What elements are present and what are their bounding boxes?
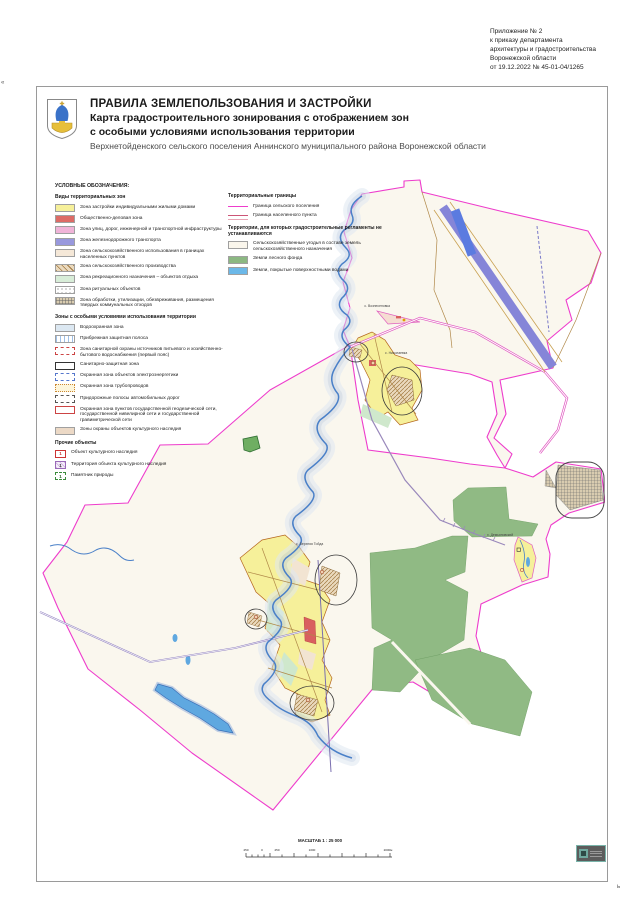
line-settlement-boundary	[228, 206, 248, 207]
legend-label: Сельскохозяйственные угодья в составе зе…	[253, 241, 386, 253]
legend-item: Зона сельскохозяйственного использования…	[55, 249, 227, 261]
stamp-text-lines	[590, 851, 602, 857]
legend-label: Зоны охраны объектов культурного наследи…	[80, 427, 181, 433]
legend-item: Зона обработки, утилизации, обезвреживан…	[55, 297, 227, 309]
legend-label: Зона ритуальных объектов	[80, 286, 140, 292]
swatch-residential-zone	[55, 204, 75, 212]
legend-label: Зона рекреационного назначения – объекто…	[80, 275, 198, 281]
legend-item: Зона рекреационного назначения – объекто…	[55, 275, 227, 283]
legend-label: Охранная зона пунктов государственной ге…	[80, 406, 227, 423]
swatch-agri-in-settlement-zone	[55, 249, 75, 257]
scale-tick: 250	[274, 848, 279, 852]
legend: УСЛОВНЫЕ ОБОЗНАЧЕНИЯ: Виды территориальн…	[55, 183, 227, 483]
legend-item: Сельскохозяйственные угодья в составе зе…	[228, 241, 386, 253]
swatch-geodetic-zone	[55, 406, 75, 414]
scale-tick: 1000	[309, 848, 316, 852]
annotation-line: от 19.12.2022 № 45-01-04/1265	[490, 64, 630, 73]
legend-label: Охранная зона трубопроводов	[80, 384, 148, 390]
legend-label: Земли, покрытые поверхностными водами	[253, 267, 348, 273]
title-text: ПРАВИЛА ЗЕМЛЕПОЛЬЗОВАНИЯ И ЗАСТРОЙКИ Кар…	[90, 98, 486, 151]
legend-label: Охранная зона объектов электроэнергетики	[80, 373, 178, 379]
legend-section-zones: Виды территориальных зон	[55, 194, 227, 200]
swatch-water-protection-zone	[55, 324, 75, 332]
swatch-heritage-zone	[55, 427, 75, 435]
legend-label: Зона железнодорожного транспорта	[80, 238, 161, 244]
doc-subtitle-1: Карта градостроительного зонирования с о…	[90, 112, 486, 124]
legend-label: Территория объекта культурного наследия	[71, 461, 166, 467]
swatch-surface-water	[228, 267, 248, 275]
title-block: ПРАВИЛА ЗЕМЛЕПОЛЬЗОВАНИЯ И ЗАСТРОЙКИ Кар…	[46, 98, 486, 151]
public-business-zone	[396, 316, 401, 318]
legend-label: Памятник природы	[71, 472, 113, 478]
stamp-qr-icon	[579, 849, 588, 858]
edge-mark-left: «	[1, 80, 4, 86]
scale-tick: 0	[261, 848, 263, 852]
swatch-power-lines-zone	[55, 373, 75, 381]
legend-label: Общественно-деловая зона	[80, 215, 142, 221]
doc-title: ПРАВИЛА ЗЕМЛЕПОЛЬЗОВАНИЯ И ЗАСТРОЙКИ	[90, 98, 486, 110]
legend-item: Зона железнодорожного транспорта	[55, 238, 227, 246]
marker-nature-monument: 1	[55, 472, 66, 480]
legend-item: Охранная зона объектов электроэнергетики	[55, 373, 227, 381]
legend-label: Зона обработки, утилизации, обезвреживан…	[80, 297, 227, 309]
swatch-coastal-strip	[55, 335, 75, 343]
swatch-streets-zone	[55, 226, 75, 234]
signature-stamp	[576, 845, 606, 862]
swatch-pipeline-zone	[55, 384, 75, 392]
legend-item: Прибрежная защитная полоса	[55, 335, 227, 343]
legend-item: Земли лесного фонда	[228, 256, 386, 264]
legend-item: Водоохранная зона	[55, 324, 227, 332]
legend-section-boundaries: Территориальные границы	[228, 193, 386, 199]
legend-label: Зона застройки индивидуальными жилыми до…	[80, 204, 195, 210]
legend-item: Земли, покрытые поверхностными водами	[228, 267, 386, 275]
legend-label: Зона санитарной охраны источников питьев…	[80, 347, 227, 359]
legend-title: УСЛОВНЫЕ ОБОЗНАЧЕНИЯ:	[55, 183, 227, 189]
map-label-demyanovsky: х. Демьяновский	[487, 533, 513, 537]
scale-tick: 2000м	[384, 848, 393, 852]
swatch-roadside-strips	[55, 395, 75, 403]
legend-item: Зона застройки индивидуальными жилыми до…	[55, 204, 227, 212]
swatch-public-business-zone	[55, 215, 75, 223]
swatch-agri-production-zone	[55, 264, 75, 272]
line-sample-wrap	[228, 212, 248, 220]
swatch-sanitary-water-source	[55, 347, 75, 355]
legend-label: Санитарно-защитная зона	[80, 362, 139, 368]
doc-subtitle-2: с особыми условиями использования террит…	[90, 126, 486, 138]
line-locality-boundary	[228, 215, 248, 220]
legend-item: Зоны охраны объектов культурного наследи…	[55, 427, 227, 435]
swatch-recreation-zone	[55, 275, 75, 283]
swatch-waste-zone	[55, 297, 75, 305]
map-label-nikolaevka: с. Николаевка	[385, 351, 407, 355]
edge-mark-bottom-right: ь	[617, 884, 620, 890]
legend-item: 1Объект культурного наследия	[55, 450, 227, 458]
forest-area	[415, 648, 532, 736]
coat-of-arms-icon	[46, 98, 78, 140]
legend-label: Граница сельского поселения	[253, 203, 319, 209]
pond	[526, 557, 530, 567]
legend-item: Граница населенного пункта	[228, 212, 386, 220]
annotation-line: к приказу департамента	[490, 37, 630, 46]
map-label-voznesenovka: с. Вознесеновка	[364, 304, 390, 308]
legend-section-no-regulation: Территории, для которых градостроительны…	[228, 225, 386, 237]
legend-item: Граница сельского поселения	[228, 203, 386, 209]
legend-item: Общественно-деловая зона	[55, 215, 227, 223]
marker-heritage-object: 1	[55, 450, 66, 458]
swatch-ritual-zone	[55, 286, 75, 294]
legend-label: Граница населенного пункта	[253, 212, 317, 218]
line-sample-wrap	[228, 203, 248, 207]
legend-item: 1Памятник природы	[55, 472, 227, 480]
swatch-agri-lands	[228, 241, 248, 249]
legend-item: Охранная зона трубопроводов	[55, 384, 227, 392]
legend-label: Земли лесного фонда	[253, 256, 302, 262]
legend-item: 1Территория объекта культурного наследия	[55, 461, 227, 469]
swatch-sanitary-protection-zone	[55, 362, 75, 370]
annotation-line: Приложение № 2	[490, 28, 630, 37]
marker-heritage-territory: 1	[55, 461, 66, 469]
legend-section-other: Прочие объекты	[55, 440, 227, 446]
swatch-forest-fund	[228, 256, 248, 264]
legend-item: Зона сельскохозяйственного производства	[55, 264, 227, 272]
legend-right: Территориальные границы Граница сельског…	[228, 193, 386, 278]
legend-label: Водоохранная зона	[80, 324, 124, 330]
legend-label: Зона сельскохозяйственного производства	[80, 264, 176, 270]
scale-title: МАСШТАБ 1 : 25 000	[298, 838, 343, 843]
order-annotation: Приложение № 2 к приказу департамента ар…	[490, 28, 630, 73]
legend-item: Зона улиц, дорог, инженерной и транспорт…	[55, 226, 227, 234]
legend-label: Объект культурного наследия	[71, 450, 137, 456]
legend-label: Придорожные полосы автомобильных дорог	[80, 395, 180, 401]
scale-tick: 250	[243, 848, 248, 852]
swatch-railway-zone	[55, 238, 75, 246]
legend-label: Прибрежная защитная полоса	[80, 335, 148, 341]
legend-item: Зона санитарной охраны источников питьев…	[55, 347, 227, 359]
document-canvas: { "annotation": { "lines": [ "Приложение…	[0, 0, 640, 905]
annotation-line: архитектуры и градостроительства	[490, 46, 630, 55]
legend-item: Санитарно-защитная зона	[55, 362, 227, 370]
legend-section-special: Зоны с особыми условиями использования т…	[55, 314, 227, 320]
doc-territory: Верхнетойденского сельского поселения Ан…	[90, 141, 486, 151]
legend-item: Зона ритуальных объектов	[55, 286, 227, 294]
annotation-line: Воронежской области	[490, 55, 630, 64]
legend-label: Зона сельскохозяйственного использования…	[80, 249, 227, 261]
legend-label: Зона улиц, дорог, инженерной и транспорт…	[80, 226, 222, 232]
legend-item: Придорожные полосы автомобильных дорог	[55, 395, 227, 403]
scale-bar: МАСШТАБ 1 : 25 000 250 0 250 1000 2000м	[243, 838, 392, 857]
legend-item: Охранная зона пунктов государственной ге…	[55, 406, 227, 423]
pond	[173, 634, 178, 642]
map-label-verkhnyaya-toyda: с. Верхняя Тойда	[296, 542, 323, 546]
